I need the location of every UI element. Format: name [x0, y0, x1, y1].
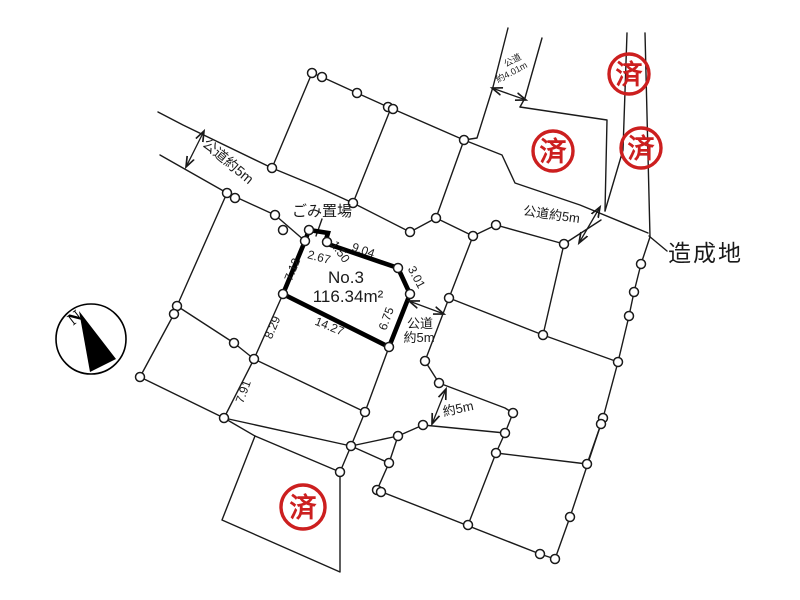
plot-no3-label: No.3 — [328, 268, 364, 287]
dim-14-27: 14.27 — [313, 314, 346, 338]
dim-6-75: 6.75 — [376, 305, 397, 332]
site-plan-svg: No.3 116.34m² 9.04 1.50 2.67 7.12 3.01 6… — [0, 0, 800, 600]
road-center-label-line1: 公道 — [407, 316, 433, 331]
site-plan-canvas: No.3 116.34m² 9.04 1.50 2.67 7.12 3.01 6… — [0, 0, 800, 600]
dim-7-91: 7.91 — [233, 378, 254, 405]
dim-8-29: 8.29 — [261, 314, 283, 341]
sold-stamp-text: 済 — [290, 492, 318, 523]
road-center-label-line2: 約5m — [403, 330, 434, 345]
road-nw-label: 公道約5m — [200, 135, 257, 187]
plot-no3-area: 116.34m² — [313, 287, 384, 306]
sold-stamp: 済 — [281, 485, 325, 529]
sold-stamp: 済 — [533, 131, 573, 171]
road-ne-width-arrow — [579, 207, 600, 243]
sold-stamp-text: 済 — [628, 133, 656, 164]
road-top-width-arrow — [492, 88, 526, 100]
road-south-label: 約5m — [441, 398, 475, 419]
garbage-area-label: ごみ置場 — [292, 203, 352, 220]
road-center-width-arrow — [409, 301, 444, 314]
sold-stamp-text: 済 — [540, 136, 568, 167]
dim-2-67: 2.67 — [306, 247, 332, 267]
north-compass: N — [56, 304, 126, 374]
sold-stamp-text: 済 — [616, 59, 644, 90]
developed-leader-line — [649, 236, 667, 251]
dim-7-12: 7.12 — [281, 256, 303, 283]
road-ne-label: 公道約5m — [522, 203, 581, 226]
sold-stamp: 済 — [609, 54, 649, 94]
sold-stamp: 済 — [621, 128, 661, 168]
dim-9-04: 9.04 — [350, 240, 377, 261]
developed-land-label: 造成地 — [668, 240, 743, 266]
